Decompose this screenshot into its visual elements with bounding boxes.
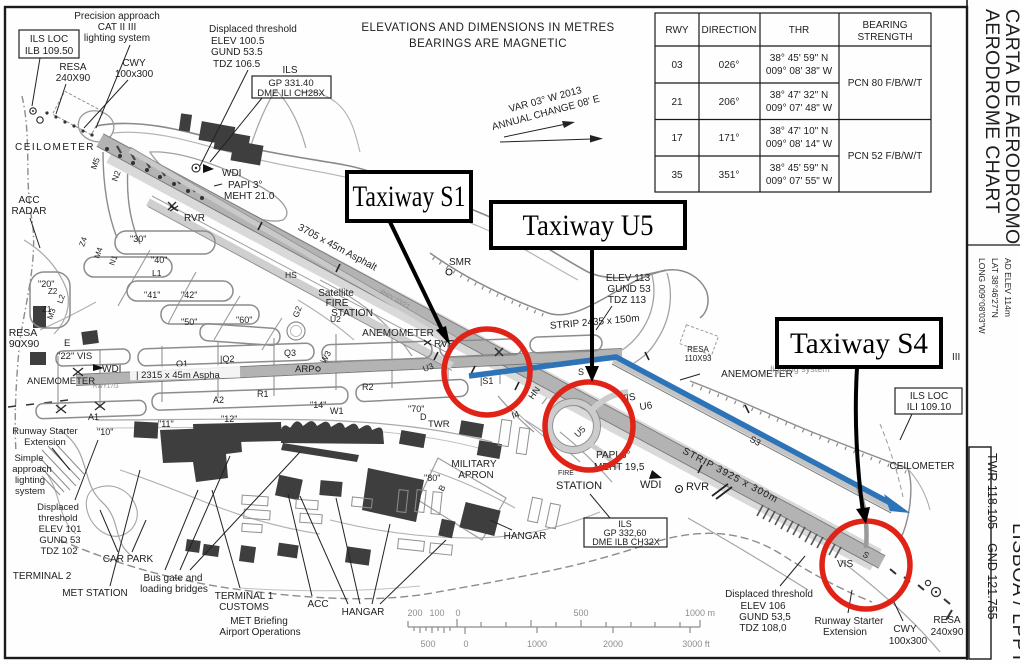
svg-text:38° 47' 32" N: 38° 47' 32" N <box>770 90 828 101</box>
svg-text:38° 45' 59" N: 38° 45' 59" N <box>770 53 828 64</box>
svg-text:0: 0 <box>455 608 460 618</box>
svg-text:ELEV 113: ELEV 113 <box>606 273 651 284</box>
svg-text:WDI: WDI <box>222 168 241 179</box>
svg-text:CUSTOMS: CUSTOMS <box>219 602 269 613</box>
svg-text:PAPI 3°: PAPI 3° <box>228 180 262 191</box>
svg-text:III: III <box>952 352 960 363</box>
svg-text:CWY: CWY <box>893 624 917 635</box>
svg-text:ELEV 106: ELEV 106 <box>740 601 785 612</box>
svg-text:17: 17 <box>671 133 683 144</box>
svg-text:171°: 171° <box>719 133 740 144</box>
svg-text:AERODROME CHART: AERODROME CHART <box>981 9 1003 214</box>
svg-text:RWY17/3: RWY17/3 <box>93 384 119 390</box>
svg-text:009° 08' 38" W: 009° 08' 38" W <box>766 66 833 77</box>
svg-text:"10": "10" <box>97 427 113 437</box>
svg-text:GUND 53: GUND 53 <box>607 284 651 295</box>
svg-text:TDZ 102: TDZ 102 <box>41 546 78 557</box>
svg-text:3000 ft: 3000 ft <box>682 639 710 649</box>
svg-text:009° 07' 55" W: 009° 07' 55" W <box>766 176 833 187</box>
svg-text:R1: R1 <box>257 389 269 399</box>
svg-text:1000: 1000 <box>527 639 547 649</box>
svg-text:loading bridges: loading bridges <box>140 584 208 595</box>
svg-text:026°: 026° <box>719 60 740 71</box>
svg-text:MET STATION: MET STATION <box>62 588 128 599</box>
svg-text:Taxiway S4: Taxiway S4 <box>790 327 928 360</box>
svg-text:TERMINAL 2: TERMINAL 2 <box>13 571 72 582</box>
svg-text:BEARING: BEARING <box>862 20 907 31</box>
svg-text:SMR: SMR <box>449 257 471 268</box>
svg-text:Q3: Q3 <box>284 348 296 358</box>
svg-text:RESA: RESA <box>687 345 709 354</box>
svg-text:100: 100 <box>429 608 444 618</box>
svg-text:Displaced threshold: Displaced threshold <box>725 589 813 600</box>
svg-text:TDZ 113: TDZ 113 <box>608 295 647 306</box>
svg-text:Taxiway U5: Taxiway U5 <box>523 209 654 242</box>
svg-text:"14": "14" <box>310 400 326 410</box>
svg-text:MET Briefing: MET Briefing <box>230 616 288 627</box>
svg-text:VIS: VIS <box>837 559 853 570</box>
svg-text:Bus gate and: Bus gate and <box>144 573 203 584</box>
svg-text:ACC: ACC <box>18 195 39 206</box>
svg-text:Displaced threshold: Displaced threshold <box>209 24 297 35</box>
svg-text:U6: U6 <box>639 400 654 413</box>
svg-text:Extension: Extension <box>823 627 867 638</box>
svg-text:200: 200 <box>407 608 422 618</box>
svg-text:ILI 109.10: ILI 109.10 <box>907 402 952 413</box>
svg-text:ILS LOC: ILS LOC <box>910 391 948 402</box>
svg-text:500: 500 <box>573 608 588 618</box>
svg-text:Runway Starter: Runway Starter <box>815 616 885 627</box>
svg-text:AD ELEV 114m: AD ELEV 114m <box>1003 258 1013 317</box>
svg-text:"42": "42" <box>181 290 197 300</box>
svg-text:RADAR: RADAR <box>11 206 46 217</box>
svg-text:WDI: WDI <box>640 479 661 491</box>
svg-text:2000: 2000 <box>603 639 623 649</box>
svg-text:Precision approach: Precision approach <box>74 11 160 22</box>
svg-text:CEILOMETER: CEILOMETER <box>15 142 95 153</box>
svg-text:38° 45' 59" N: 38° 45' 59" N <box>770 163 828 174</box>
svg-text:38° 47' 10" N: 38° 47' 10" N <box>770 126 828 137</box>
svg-text:ELEVATIONS AND DIMENSIONS IN M: ELEVATIONS AND DIMENSIONS IN METRES <box>361 22 614 34</box>
svg-text:"12": "12" <box>221 414 237 424</box>
svg-text:"80": "80" <box>424 473 440 483</box>
svg-text:W1: W1 <box>330 406 344 416</box>
svg-text:35: 35 <box>671 170 683 181</box>
svg-text:206°: 206° <box>719 97 740 108</box>
svg-text:"41": "41" <box>144 290 160 300</box>
svg-text:RVR: RVR <box>184 213 205 224</box>
svg-text:100x300: 100x300 <box>115 69 154 80</box>
svg-text:| 2315 x 45m Aspha: | 2315 x 45m Aspha <box>136 370 221 381</box>
svg-text:A2: A2 <box>213 395 224 405</box>
svg-text:CWY: CWY <box>122 58 146 69</box>
svg-text:MILITARY: MILITARY <box>451 459 497 470</box>
svg-text:Displaced: Displaced <box>37 502 79 513</box>
svg-text:"60": "60" <box>236 315 252 325</box>
svg-text:CAR PARK: CAR PARK <box>103 554 154 565</box>
svg-text:03: 03 <box>671 60 683 71</box>
svg-text:Simple: Simple <box>14 453 43 464</box>
svg-text:LAT 38°46'27"N: LAT 38°46'27"N <box>990 258 1000 318</box>
svg-text:500: 500 <box>420 639 435 649</box>
svg-text:GUND 53.5: GUND 53.5 <box>211 47 263 58</box>
svg-text:Airport Operations: Airport Operations <box>219 627 300 638</box>
svg-text:Runway Starter: Runway Starter <box>12 426 77 437</box>
svg-text:TDZ 106.5: TDZ 106.5 <box>213 59 261 70</box>
svg-text:LISBOA / LPPT: LISBOA / LPPT <box>1008 523 1020 664</box>
svg-text:ILS LOC: ILS LOC <box>30 34 68 45</box>
svg-text:110X93: 110X93 <box>685 354 713 363</box>
svg-text:|Q2: |Q2 <box>220 354 234 364</box>
svg-text:351°: 351° <box>719 170 740 181</box>
svg-text:ELEV 101: ELEV 101 <box>39 524 82 535</box>
svg-text:RESA: RESA <box>59 62 87 73</box>
svg-text:ILS: ILS <box>282 65 297 76</box>
svg-text:S: S <box>578 367 584 377</box>
svg-text:A1: A1 <box>88 412 99 422</box>
svg-text:lighting: lighting <box>15 475 45 486</box>
svg-text:1000 m: 1000 m <box>685 608 715 618</box>
svg-text:WDI: WDI <box>102 364 121 375</box>
svg-text:lighting system: lighting system <box>84 33 150 44</box>
svg-text:BEARINGS ARE MAGNETIC: BEARINGS ARE MAGNETIC <box>409 38 567 50</box>
svg-text:0: 0 <box>463 639 468 649</box>
svg-text:TDZ 108,0: TDZ 108,0 <box>739 623 787 634</box>
svg-text:PCN 52 F/B/W/T: PCN 52 F/B/W/T <box>848 151 922 162</box>
svg-text:"11": "11" <box>158 419 174 429</box>
svg-text:threshold: threshold <box>38 513 77 524</box>
svg-text:ARP: ARP <box>295 364 315 375</box>
svg-text:LONG 009°08'03"W: LONG 009°08'03"W <box>977 258 987 334</box>
svg-text:HS: HS <box>285 270 297 280</box>
svg-text:DME ILI CH28X: DME ILI CH28X <box>257 88 325 99</box>
svg-text:STRENGTH: STRENGTH <box>858 32 913 43</box>
svg-text:FIRE: FIRE <box>558 470 574 477</box>
svg-text:"22" VIS: "22" VIS <box>57 351 92 362</box>
svg-text:THR: THR <box>789 25 810 36</box>
svg-text:009° 08' 14" W: 009° 08' 14" W <box>766 139 833 150</box>
svg-text:TWR 118.105 GND 121.755: TWR 118.105 GND 121.755 <box>985 453 999 620</box>
svg-text:GUND 53,5: GUND 53,5 <box>739 612 791 623</box>
svg-text:system: system <box>15 486 45 497</box>
svg-text:ANEMOMETER: ANEMOMETER <box>27 376 95 387</box>
svg-text:"40": "40" <box>151 255 167 265</box>
svg-text:E: E <box>64 338 70 349</box>
svg-text:ILB 109.50: ILB 109.50 <box>25 46 74 57</box>
svg-text:240x90: 240x90 <box>931 627 964 638</box>
svg-text:DIRECTION: DIRECTION <box>702 25 757 36</box>
svg-text:Taxiway S1: Taxiway S1 <box>353 180 466 213</box>
svg-text:Z2: Z2 <box>48 287 58 296</box>
svg-text:DME ILB CH32X: DME ILB CH32X <box>592 537 660 547</box>
svg-text:APRON: APRON <box>458 470 494 481</box>
svg-text:|S1: |S1 <box>480 376 493 386</box>
svg-text:CAT II III: CAT II III <box>98 22 137 33</box>
svg-text:"50": "50" <box>181 317 197 327</box>
svg-text:HANGAR: HANGAR <box>504 531 547 542</box>
svg-text:CEILOMETER: CEILOMETER <box>889 461 954 472</box>
svg-text:TWR: TWR <box>428 419 450 430</box>
svg-text:HANGAR: HANGAR <box>342 607 385 618</box>
svg-text:21: 21 <box>671 97 683 108</box>
svg-text:Extension: Extension <box>24 437 66 448</box>
svg-text:MEHT 21.0: MEHT 21.0 <box>224 191 275 202</box>
svg-text:D: D <box>420 412 427 422</box>
svg-text:RWY: RWY <box>665 25 688 36</box>
svg-text:R2: R2 <box>362 382 374 392</box>
svg-text:PCN 80 F/B/W/T: PCN 80 F/B/W/T <box>848 78 922 89</box>
svg-text:100x300: 100x300 <box>889 636 928 647</box>
svg-text:L1: L1 <box>152 268 162 278</box>
svg-text:ACC: ACC <box>307 599 328 610</box>
svg-text:GUND 53: GUND 53 <box>39 535 80 546</box>
svg-text:240X90: 240X90 <box>56 73 91 84</box>
svg-text:RESA: RESA <box>933 615 961 626</box>
svg-text:U2: U2 <box>330 314 341 324</box>
svg-text:009° 07' 48" W: 009° 07' 48" W <box>766 103 833 114</box>
svg-text:approach: approach <box>12 464 52 475</box>
svg-text:RVR: RVR <box>686 481 709 493</box>
svg-text:ELEV 100.5: ELEV 100.5 <box>211 36 265 47</box>
svg-text:TERMINAL 1: TERMINAL 1 <box>215 591 274 602</box>
svg-text:ANEMOMETER: ANEMOMETER <box>362 328 434 339</box>
svg-text:90X90: 90X90 <box>9 338 40 350</box>
svg-text:"30": "30" <box>130 234 146 244</box>
svg-text:STATION: STATION <box>556 480 602 492</box>
